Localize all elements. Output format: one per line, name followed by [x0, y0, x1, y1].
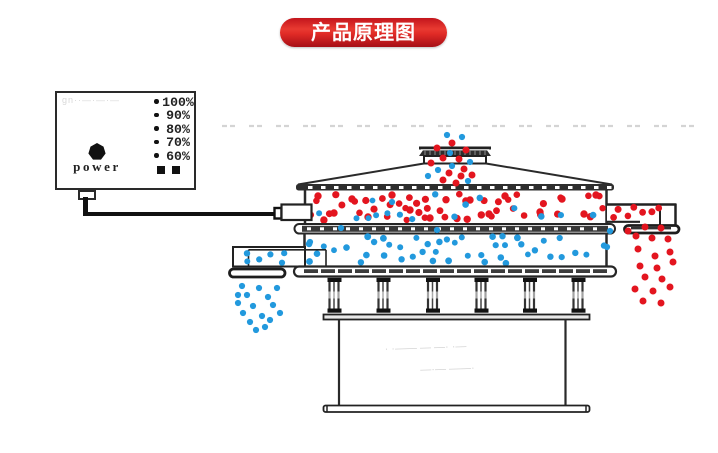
svg-text:· ·—— — —· ·—: · ·—— — —· ·— — [384, 340, 466, 355]
svg-text:—·— ——·: —·— ——· — [420, 362, 475, 376]
